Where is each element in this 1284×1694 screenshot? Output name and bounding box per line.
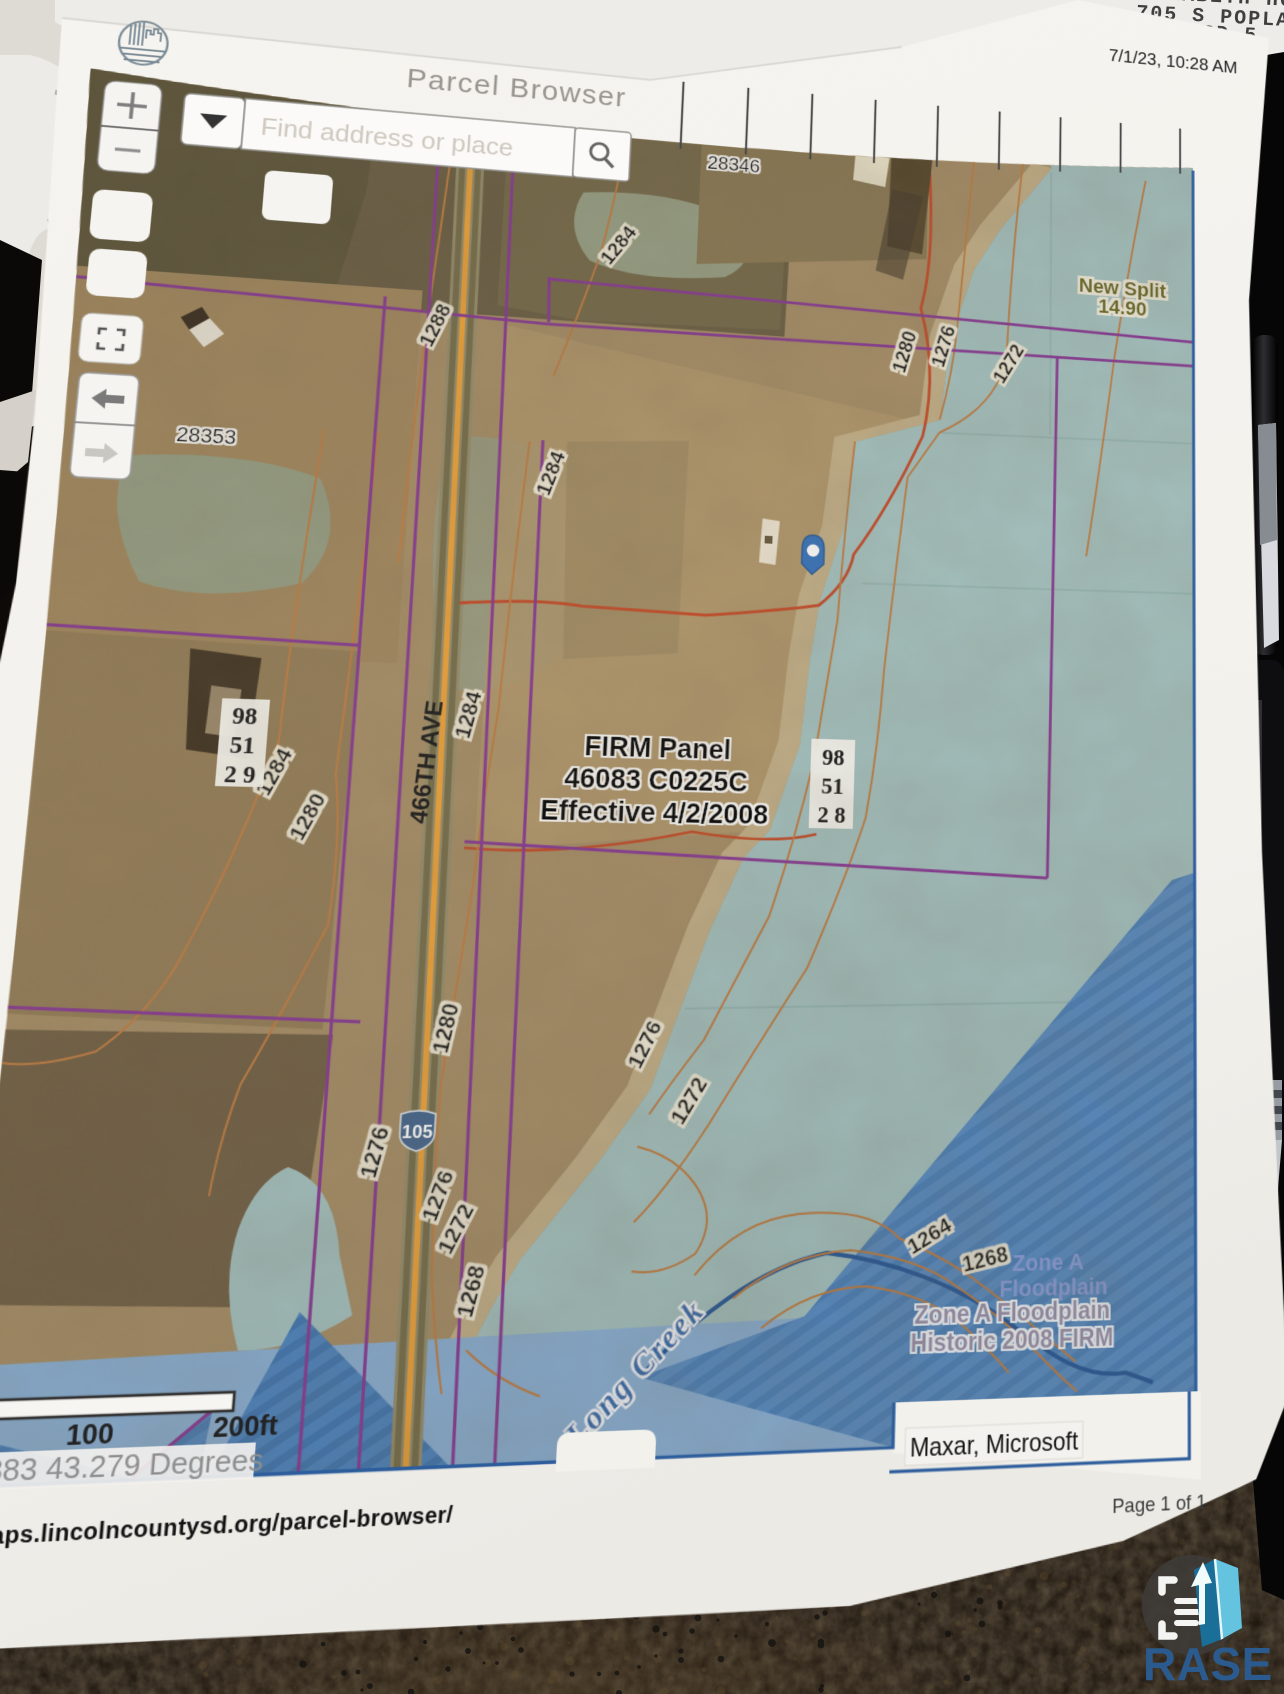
svg-text:RASE: RASE: [1143, 1638, 1273, 1690]
